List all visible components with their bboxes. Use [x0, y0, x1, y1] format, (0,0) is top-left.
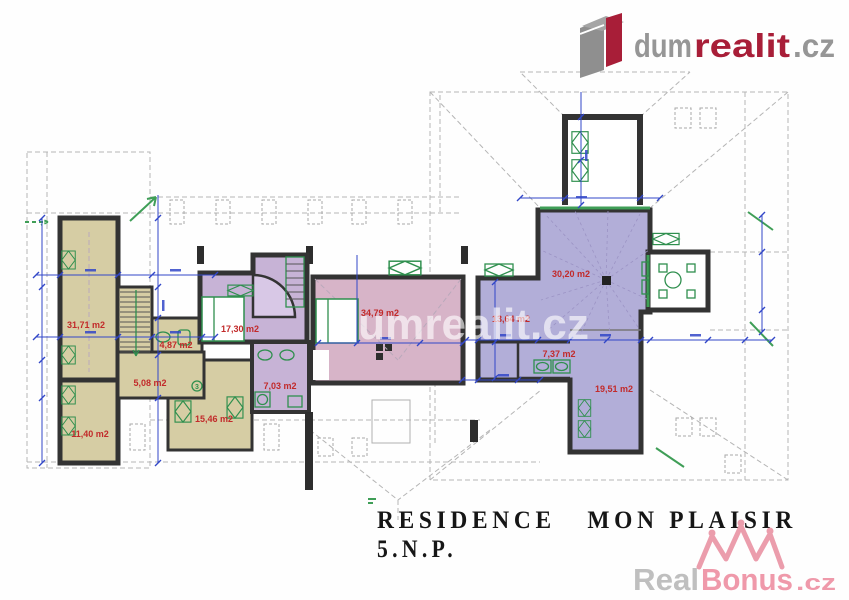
- residence-title: RESIDENCE MON PLAISIR: [377, 507, 797, 534]
- logo-prefix: dum: [634, 27, 692, 64]
- realbonus-prefix: Real: [633, 562, 699, 597]
- window-icon: [485, 264, 513, 276]
- room-area-label: 15,46 m2: [195, 414, 233, 424]
- floorplan-canvas: 3 31: [0, 0, 849, 600]
- room-area-label: 5,08 m2: [133, 378, 166, 388]
- room-area-label: 11,40 m2: [71, 429, 109, 439]
- room-bottom-left: [60, 380, 118, 463]
- realbonus-suffix: .cz: [796, 570, 836, 595]
- wardrobe-icon: [389, 261, 421, 275]
- room-area-label: 4,87 m2: [159, 340, 192, 350]
- dumrealit-cube-icon: [580, 13, 624, 78]
- realbonus-accent: Bonus: [701, 562, 793, 597]
- fixture-number: 3: [195, 384, 199, 391]
- floorplan-page: 3 31: [0, 0, 849, 600]
- room-area-label: 19,51 m2: [595, 384, 633, 394]
- column: [602, 276, 611, 285]
- logo-suffix: .cz: [793, 27, 835, 64]
- window-icon: [653, 233, 679, 244]
- room-area-label: 31,71 m2: [67, 320, 105, 330]
- room-area-label: 7,03 m2: [263, 381, 296, 391]
- room-area-label: 17,30 m2: [221, 324, 259, 334]
- hall-left: [118, 352, 204, 398]
- tower-room-fill: [565, 117, 640, 205]
- floor-level: 5.N.P.: [377, 536, 457, 563]
- bed-icon: [202, 297, 244, 341]
- staircase: [118, 287, 152, 360]
- dumrealit-logo[interactable]: dum realit .cz: [580, 13, 835, 78]
- room-area-label: 30,20 m2: [552, 269, 590, 279]
- roof-window-brackets-top: [170, 200, 412, 224]
- center-watermark: dumrealit.cz: [331, 300, 589, 349]
- terrace: [648, 252, 708, 310]
- logo-accent: realit: [694, 27, 790, 64]
- wall-extension: [305, 412, 313, 490]
- door-opening: [313, 350, 329, 380]
- room-area-label: 7,37 m2: [542, 349, 575, 359]
- plan-title: RESIDENCE MON PLAISIR 5.N.P.: [377, 507, 797, 563]
